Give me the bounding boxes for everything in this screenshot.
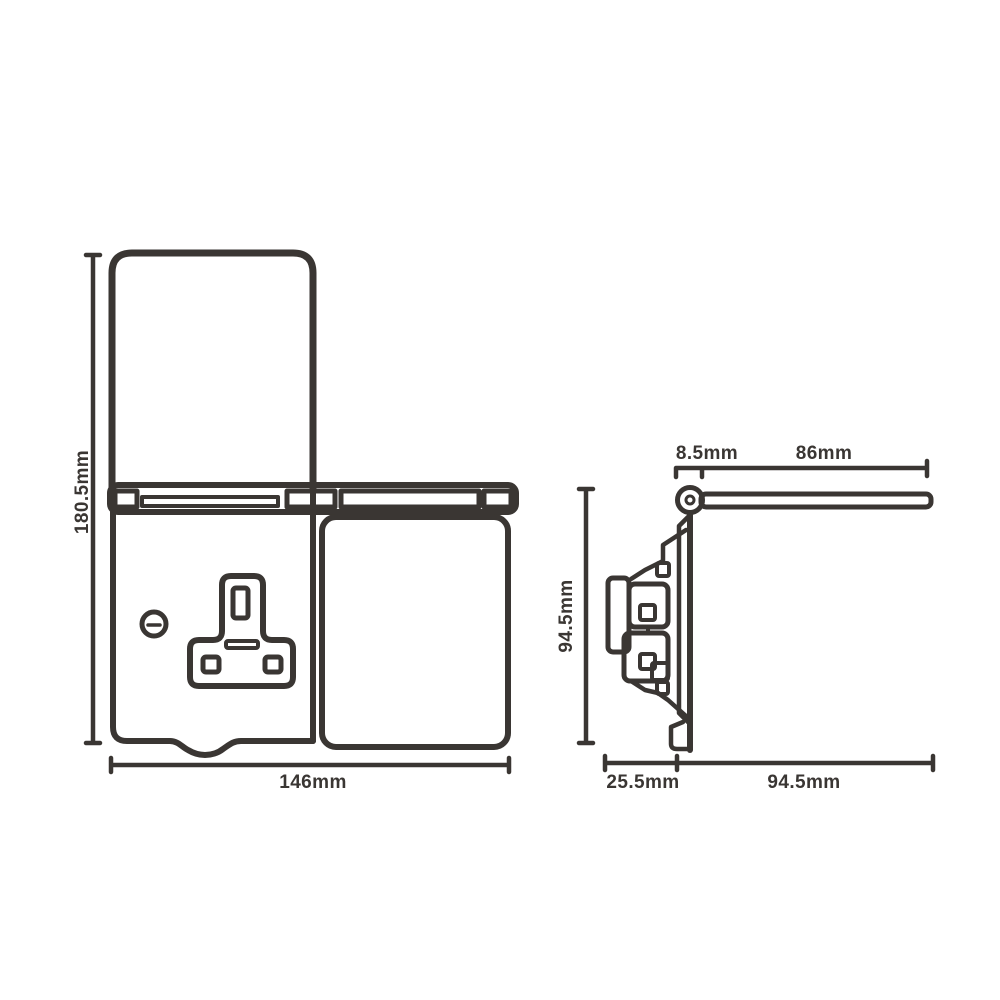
side-hinge-pin xyxy=(686,496,694,504)
front-width-dim-line xyxy=(111,758,509,772)
side-height-label: 94.5mm xyxy=(556,579,577,652)
front-right-plate xyxy=(322,517,508,747)
side-top-dimension: 8.5mm 86mm xyxy=(676,443,927,477)
front-band-segment-right xyxy=(484,491,511,507)
side-upper-clip xyxy=(657,563,669,576)
side-faceplate-back xyxy=(679,517,688,722)
socket-earth-pin-hole xyxy=(233,588,248,618)
front-height-label: 180.5mm xyxy=(72,450,93,534)
front-band-hinge-slot xyxy=(142,497,278,506)
front-width-dimension: 146mm xyxy=(111,758,509,793)
side-height-dimension: 94.5mm xyxy=(556,489,593,743)
dimension-drawing: 180.5mm 146mm 94.5mm 8.5mm xyxy=(0,0,1000,1000)
side-bottom-dim-line xyxy=(605,756,933,770)
socket-shutter-detail xyxy=(226,641,258,648)
front-view xyxy=(110,253,516,755)
side-upper-terminal-screw xyxy=(640,605,655,620)
side-height-dim-line xyxy=(579,489,593,743)
socket-live-pin-hole xyxy=(203,657,219,672)
side-open-lid-bar xyxy=(701,494,931,507)
socket-neutral-pin-hole xyxy=(265,657,281,672)
side-bottom-dimension: 25.5mm 94.5mm xyxy=(605,756,933,793)
side-view xyxy=(608,488,931,751)
side-box-depth-label: 25.5mm xyxy=(606,772,679,793)
front-band-segment-left xyxy=(115,491,137,507)
front-open-lid-outline xyxy=(112,253,313,491)
side-hinge-offset-label: 8.5mm xyxy=(676,443,738,464)
side-projection-label: 94.5mm xyxy=(767,772,840,793)
front-left-plate-outline xyxy=(113,512,313,755)
drawing-svg: 180.5mm 146mm 94.5mm 8.5mm xyxy=(0,0,1000,1000)
front-band-segment-mid-large xyxy=(341,491,479,507)
side-lid-length-label: 86mm xyxy=(796,443,853,464)
front-width-label: 146mm xyxy=(279,772,347,793)
front-height-dimension: 180.5mm xyxy=(72,255,100,743)
